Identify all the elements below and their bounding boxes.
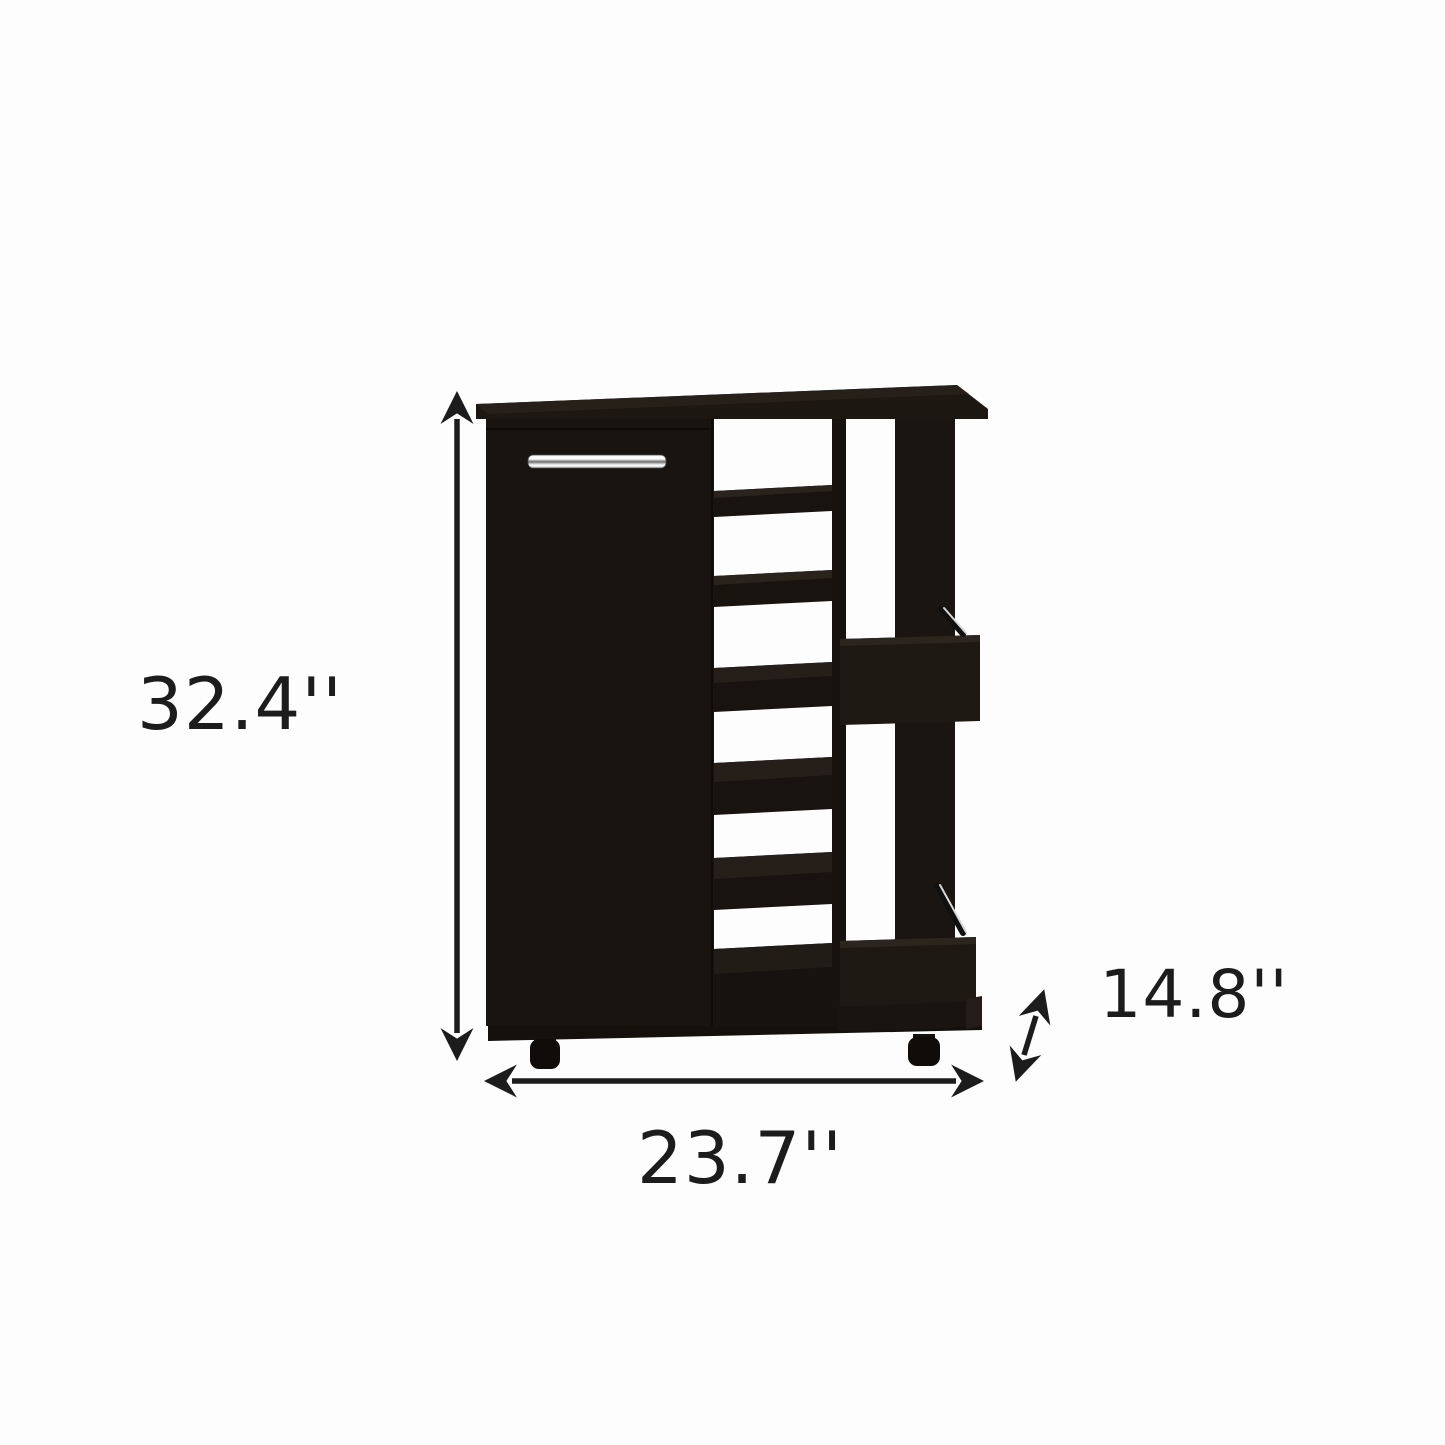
height-dimension-label: 32.4'' [137, 668, 343, 740]
cabinet-top-panel [476, 385, 988, 419]
caster-wheel-left [530, 1036, 560, 1069]
door-handle [528, 455, 666, 468]
cabinet-door [486, 419, 714, 1026]
width-dimension-label: 23.7'' [637, 1122, 843, 1194]
lower-side-ledge [838, 937, 982, 1031]
depth-dimension-label: 14.8'' [1099, 962, 1288, 1028]
product-dimension-image: 32.4'' 23.7'' 14.8'' [0, 0, 1445, 1445]
upper-side-ledge [840, 635, 980, 725]
caster-wheel-right [908, 1034, 940, 1066]
shelf-bottom-board [714, 943, 832, 1026]
bar-cart-cabinet [476, 385, 988, 1069]
shelf-board-1 [714, 485, 832, 517]
shelf-column [714, 485, 832, 1026]
shelf-board-2 [714, 570, 832, 607]
shelf-board-5 [714, 852, 832, 910]
shelf-board-3 [714, 662, 832, 712]
shelf-board-4 [714, 757, 832, 815]
depth-dimension-arrow-icon [1024, 1016, 1036, 1055]
